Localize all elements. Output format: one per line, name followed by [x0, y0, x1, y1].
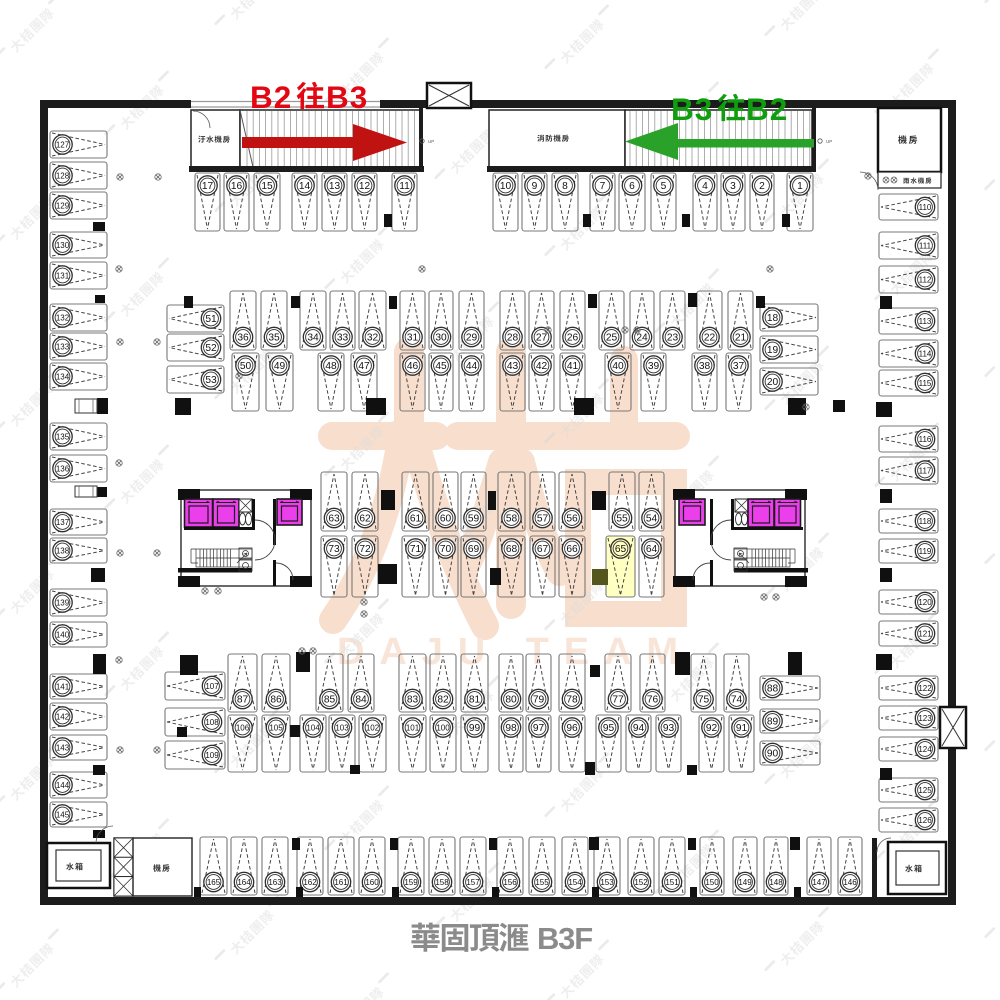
- svg-text:97: 97: [533, 723, 545, 734]
- svg-text:B3F: B3F: [537, 921, 592, 956]
- svg-text:44: 44: [466, 361, 478, 372]
- svg-text:49: 49: [274, 361, 286, 372]
- svg-text:142: 142: [56, 712, 70, 721]
- svg-text:132: 132: [56, 313, 70, 322]
- svg-text:51: 51: [205, 314, 217, 325]
- svg-text:129: 129: [56, 201, 70, 210]
- svg-text:117: 117: [919, 466, 932, 475]
- svg-text:17: 17: [202, 181, 214, 192]
- svg-text:78: 78: [566, 695, 578, 706]
- svg-text:112: 112: [919, 275, 932, 284]
- svg-text:160: 160: [365, 878, 379, 887]
- svg-text:42: 42: [536, 361, 548, 372]
- svg-text:90: 90: [767, 749, 779, 760]
- svg-text:70: 70: [440, 544, 452, 555]
- svg-text:80: 80: [505, 695, 517, 706]
- svg-text:100: 100: [436, 723, 450, 732]
- svg-text:147: 147: [812, 878, 826, 887]
- svg-text:36: 36: [237, 333, 249, 344]
- svg-text:120: 120: [918, 598, 932, 607]
- svg-text:8: 8: [562, 181, 568, 192]
- svg-text:162: 162: [303, 878, 317, 887]
- svg-text:109: 109: [205, 751, 219, 760]
- svg-text:110: 110: [919, 203, 932, 212]
- svg-text:86: 86: [270, 695, 282, 706]
- svg-text:25: 25: [606, 333, 618, 344]
- svg-text:68: 68: [506, 544, 518, 555]
- svg-text:95: 95: [603, 723, 615, 734]
- svg-text:163: 163: [268, 878, 282, 887]
- svg-text:15: 15: [261, 181, 273, 192]
- svg-text:23: 23: [667, 333, 679, 344]
- svg-text:114: 114: [919, 349, 932, 358]
- svg-text:153: 153: [600, 878, 614, 887]
- svg-text:47: 47: [358, 361, 370, 372]
- svg-text:B2: B2: [746, 91, 788, 127]
- svg-text:136: 136: [56, 464, 70, 473]
- svg-text:76: 76: [647, 695, 659, 706]
- svg-text:26: 26: [567, 333, 579, 344]
- svg-text:118: 118: [919, 517, 932, 526]
- svg-text:64: 64: [646, 544, 658, 555]
- svg-text:149: 149: [738, 878, 752, 887]
- svg-text:96: 96: [566, 723, 578, 734]
- svg-text:104: 104: [306, 723, 320, 732]
- svg-text:1: 1: [797, 181, 803, 192]
- svg-text:40: 40: [612, 361, 624, 372]
- svg-text:155: 155: [535, 878, 549, 887]
- svg-text:125: 125: [918, 786, 932, 795]
- svg-text:82: 82: [437, 695, 449, 706]
- svg-text:62: 62: [359, 514, 371, 525]
- svg-text:113: 113: [919, 317, 932, 326]
- svg-text:37: 37: [733, 361, 745, 372]
- svg-text:61: 61: [410, 514, 422, 525]
- svg-text:53: 53: [205, 375, 217, 386]
- svg-text:107: 107: [205, 682, 219, 691]
- svg-text:6: 6: [629, 181, 635, 192]
- svg-text:4: 4: [702, 181, 708, 192]
- svg-text:119: 119: [919, 547, 932, 556]
- svg-text:13: 13: [329, 181, 341, 192]
- svg-text:24: 24: [636, 333, 648, 344]
- svg-text:14: 14: [299, 181, 311, 192]
- svg-text:45: 45: [435, 361, 447, 372]
- svg-text:159: 159: [404, 878, 418, 887]
- svg-text:111: 111: [919, 241, 932, 250]
- svg-text:156: 156: [503, 878, 517, 887]
- svg-text:81: 81: [469, 695, 481, 706]
- svg-text:39: 39: [648, 361, 660, 372]
- svg-text:B3: B3: [326, 79, 368, 115]
- svg-text:35: 35: [268, 333, 280, 344]
- svg-text:29: 29: [466, 333, 478, 344]
- svg-text:141: 141: [56, 682, 70, 691]
- svg-text:71: 71: [410, 544, 422, 555]
- svg-text:67: 67: [537, 544, 549, 555]
- svg-text:50: 50: [240, 361, 252, 372]
- svg-text:137: 137: [56, 518, 70, 527]
- svg-text:84: 84: [355, 695, 367, 706]
- svg-text:32: 32: [367, 333, 379, 344]
- svg-text:B3: B3: [671, 91, 713, 127]
- svg-text:52: 52: [205, 343, 217, 354]
- svg-text:31: 31: [407, 333, 419, 344]
- svg-text:43: 43: [507, 361, 519, 372]
- svg-text:18: 18: [767, 313, 779, 324]
- svg-text:73: 73: [328, 544, 340, 555]
- svg-text:UP: UP: [428, 139, 434, 144]
- svg-text:58: 58: [506, 514, 518, 525]
- svg-text:148: 148: [769, 878, 783, 887]
- svg-text:65: 65: [615, 544, 627, 555]
- svg-text:87: 87: [237, 695, 249, 706]
- svg-text:138: 138: [56, 546, 70, 555]
- svg-text:7: 7: [600, 181, 606, 192]
- svg-text:74: 74: [731, 695, 743, 706]
- svg-text:57: 57: [537, 514, 549, 525]
- svg-text:145: 145: [56, 810, 70, 819]
- svg-text:133: 133: [56, 342, 70, 351]
- svg-text:38: 38: [699, 361, 711, 372]
- svg-text:139: 139: [56, 598, 70, 607]
- svg-text:9: 9: [532, 181, 538, 192]
- svg-text:54: 54: [646, 514, 658, 525]
- svg-text:72: 72: [359, 544, 371, 555]
- svg-text:19: 19: [767, 345, 779, 356]
- svg-text:75: 75: [698, 695, 710, 706]
- svg-text:134: 134: [56, 372, 70, 381]
- svg-text:56: 56: [566, 514, 578, 525]
- svg-text:93: 93: [663, 723, 675, 734]
- svg-text:164: 164: [237, 878, 251, 887]
- svg-text:89: 89: [767, 717, 779, 728]
- svg-text:3: 3: [730, 181, 736, 192]
- svg-text:34: 34: [307, 333, 319, 344]
- svg-text:94: 94: [633, 723, 645, 734]
- svg-text:30: 30: [435, 333, 447, 344]
- svg-text:DAJU TEAM: DAJU TEAM: [337, 631, 678, 673]
- svg-text:79: 79: [533, 695, 545, 706]
- svg-text:115: 115: [919, 379, 932, 388]
- svg-text:28: 28: [507, 333, 519, 344]
- svg-text:152: 152: [634, 878, 648, 887]
- svg-text:55: 55: [616, 514, 628, 525]
- svg-text:22: 22: [704, 333, 716, 344]
- svg-text:121: 121: [918, 629, 932, 638]
- svg-text:103: 103: [335, 723, 349, 732]
- svg-text:66: 66: [566, 544, 578, 555]
- svg-text:85: 85: [324, 695, 336, 706]
- svg-text:131: 131: [56, 271, 70, 280]
- svg-text:UP: UP: [826, 139, 832, 144]
- svg-text:59: 59: [468, 514, 480, 525]
- svg-text:127: 127: [56, 140, 70, 149]
- svg-text:5: 5: [661, 181, 667, 192]
- svg-text:130: 130: [56, 241, 70, 250]
- svg-text:108: 108: [205, 718, 219, 727]
- svg-text:11: 11: [399, 181, 410, 192]
- svg-text:135: 135: [56, 432, 70, 441]
- svg-text:41: 41: [567, 361, 579, 372]
- svg-text:20: 20: [767, 377, 779, 388]
- svg-text:91: 91: [736, 723, 748, 734]
- svg-text:60: 60: [440, 514, 452, 525]
- svg-text:116: 116: [919, 435, 932, 444]
- svg-text:165: 165: [207, 878, 221, 887]
- svg-text:122: 122: [918, 684, 932, 693]
- svg-text:16: 16: [231, 181, 243, 192]
- svg-text:158: 158: [435, 878, 449, 887]
- svg-text:123: 123: [918, 714, 932, 723]
- svg-text:157: 157: [466, 878, 480, 887]
- svg-text:143: 143: [56, 743, 70, 752]
- svg-text:101: 101: [406, 723, 420, 732]
- svg-text:63: 63: [328, 514, 340, 525]
- svg-text:161: 161: [334, 878, 348, 887]
- svg-text:83: 83: [407, 695, 419, 706]
- svg-text:106: 106: [236, 723, 250, 732]
- svg-text:128: 128: [56, 171, 70, 180]
- svg-text:27: 27: [536, 333, 548, 344]
- svg-text:2: 2: [759, 181, 765, 192]
- svg-text:98: 98: [505, 723, 517, 734]
- svg-text:88: 88: [767, 684, 779, 695]
- svg-text:151: 151: [665, 878, 679, 887]
- svg-text:12: 12: [359, 181, 371, 192]
- svg-text:69: 69: [468, 544, 480, 555]
- svg-text:21: 21: [735, 333, 747, 344]
- svg-text:144: 144: [56, 781, 70, 790]
- svg-text:105: 105: [269, 723, 283, 732]
- svg-text:46: 46: [407, 361, 419, 372]
- svg-text:154: 154: [568, 878, 582, 887]
- svg-text:10: 10: [500, 181, 512, 192]
- svg-text:140: 140: [56, 630, 70, 639]
- svg-text:77: 77: [612, 695, 624, 706]
- svg-text:33: 33: [337, 333, 349, 344]
- svg-text:124: 124: [918, 745, 932, 754]
- svg-text:99: 99: [469, 723, 481, 734]
- svg-text:150: 150: [705, 878, 719, 887]
- svg-text:146: 146: [843, 878, 857, 887]
- svg-text:102: 102: [366, 723, 380, 732]
- svg-text:48: 48: [325, 361, 337, 372]
- svg-text:126: 126: [918, 816, 932, 825]
- svg-text:92: 92: [706, 723, 718, 734]
- svg-text:B2: B2: [250, 79, 292, 115]
